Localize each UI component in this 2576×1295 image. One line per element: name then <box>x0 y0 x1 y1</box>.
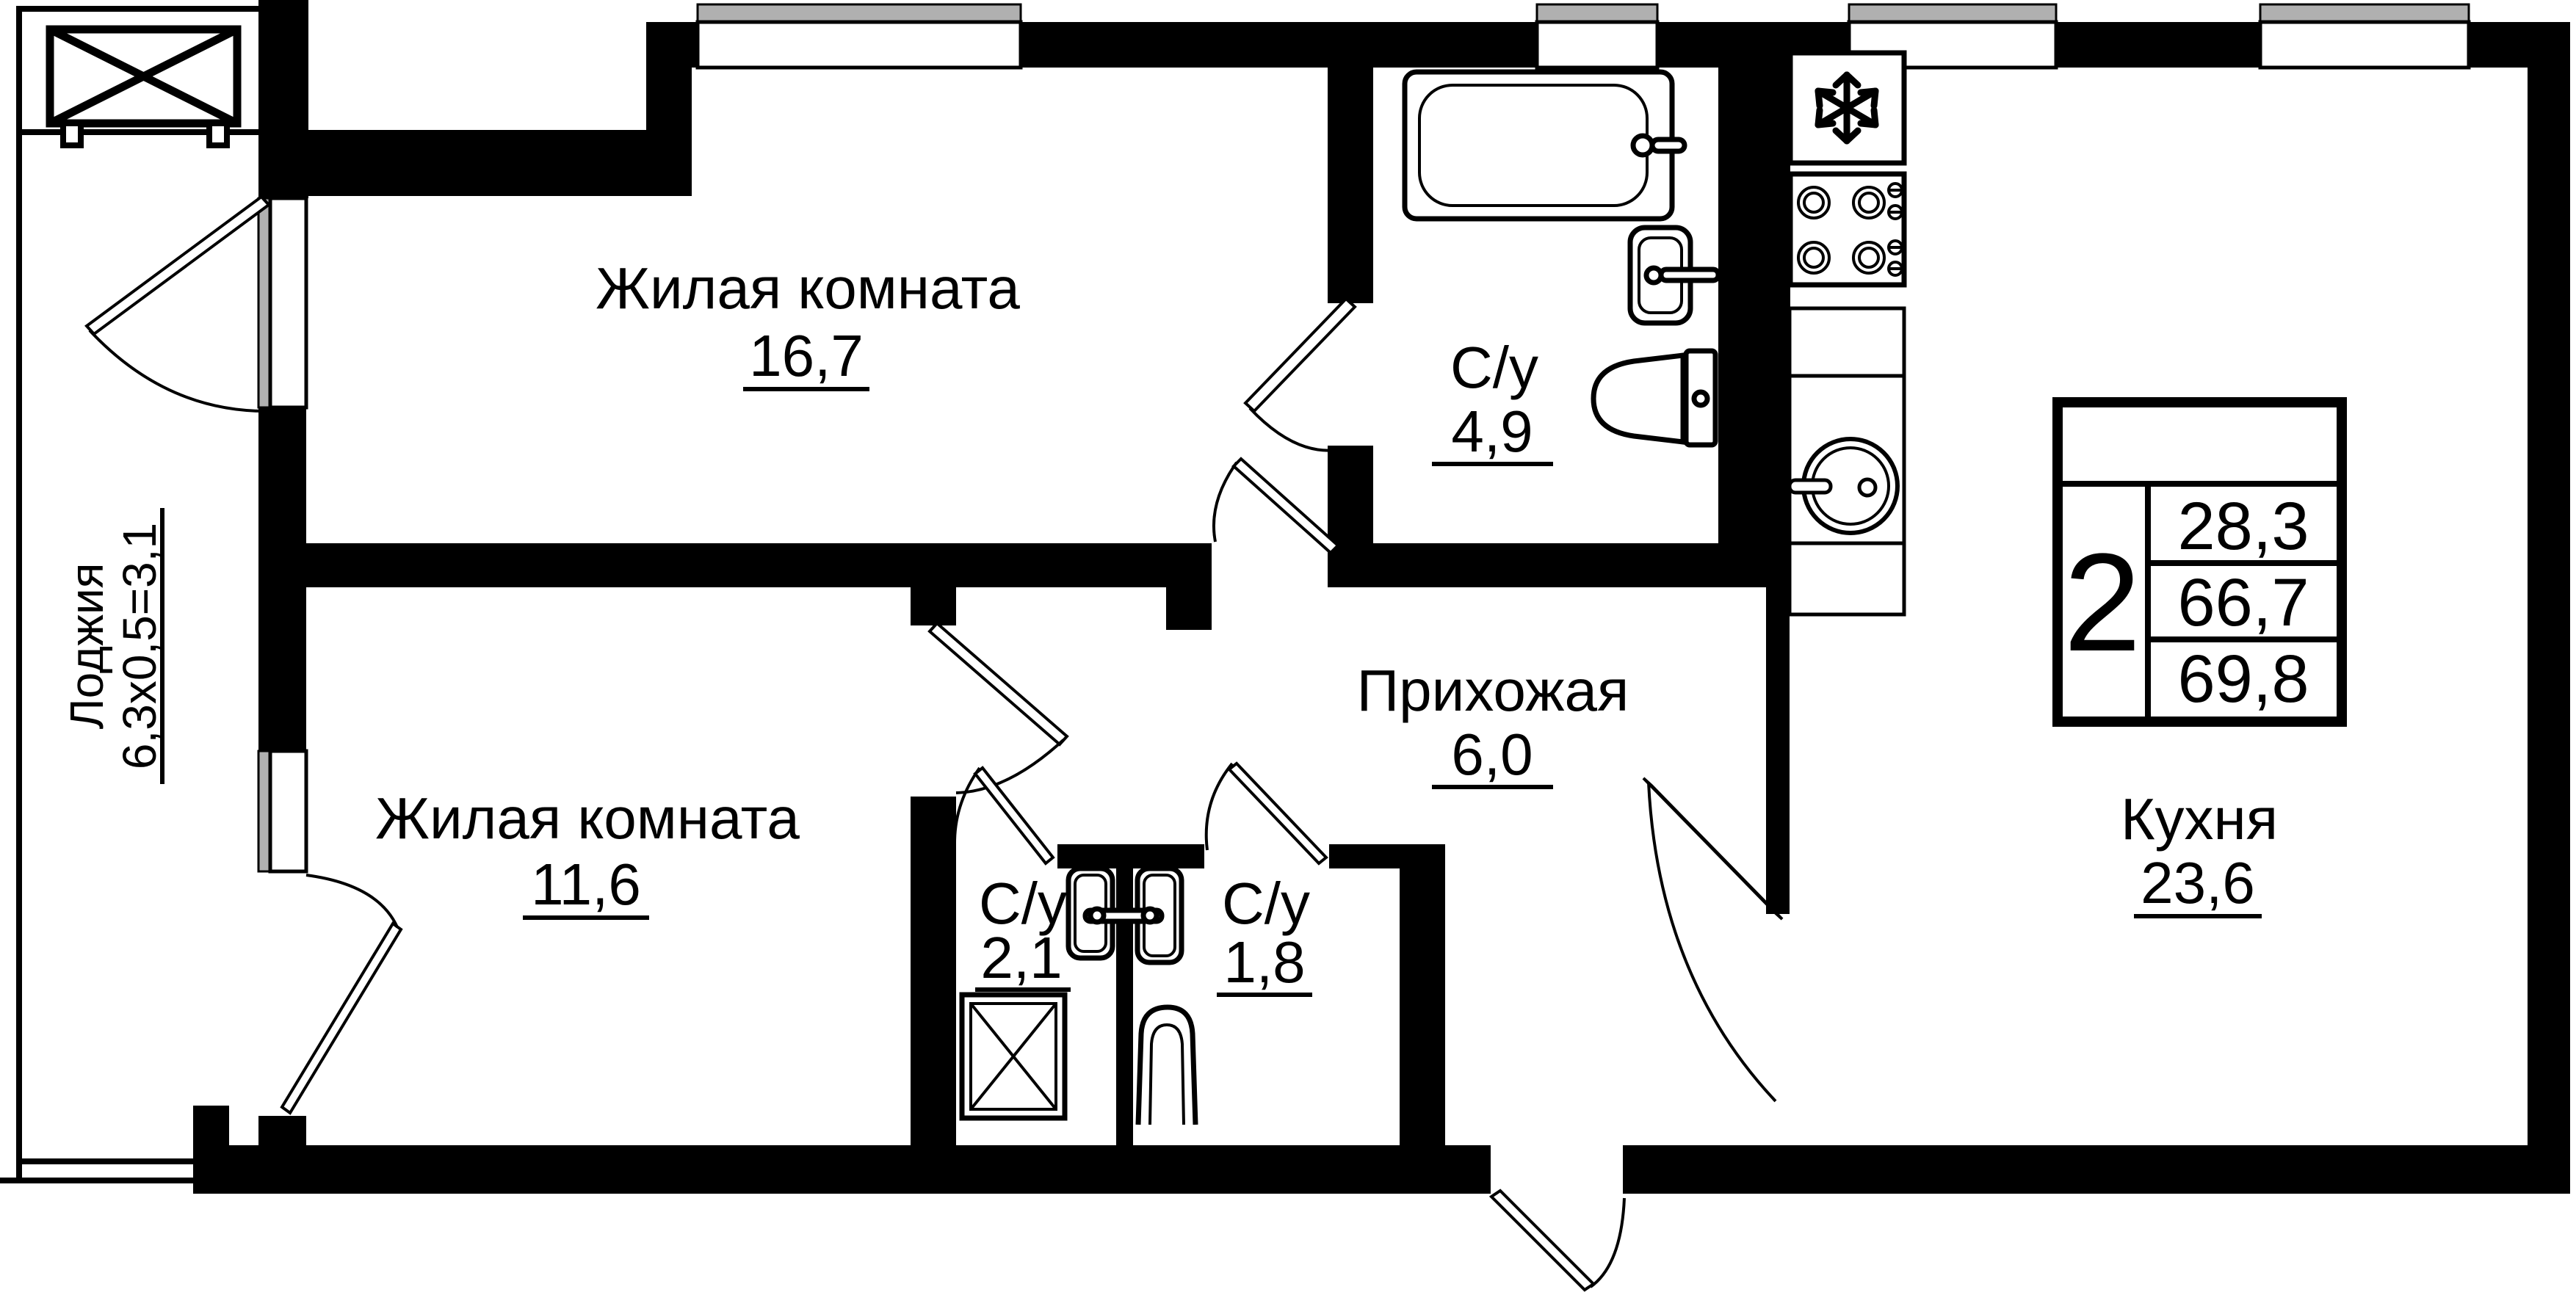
bath1-wall-bottom <box>1328 543 1790 587</box>
room-dimensions: 6,3х0,5=3,1 <box>113 523 166 769</box>
room-name: Прихожая <box>1357 658 1629 723</box>
outer-wall-right <box>2528 22 2570 1194</box>
living2-right-wall-stub <box>911 587 956 625</box>
door-entrance <box>1491 1191 1624 1290</box>
sink-icon <box>1630 228 1718 323</box>
door-kitchen <box>1643 778 1782 1101</box>
room-name: С/у <box>1450 335 1538 400</box>
room-name: С/у <box>1222 871 1310 936</box>
living1-label: Жилая комната 16,7 <box>596 255 1020 389</box>
left-wall-low-pier <box>258 1116 306 1145</box>
sash-swing-arc <box>90 330 266 411</box>
room-area: 6,0 <box>1451 722 1533 787</box>
outer-wall-bottom-left <box>229 1145 1491 1194</box>
corner-pier-top-left <box>258 0 308 198</box>
room-area: 16,7 <box>749 323 864 388</box>
corner-pier-bottom-left <box>193 1106 229 1194</box>
legend-rooms-count: 2 <box>2063 525 2141 681</box>
loggia: Лоджия 6,3х0,5=3,1 <box>0 6 258 1180</box>
kitchen-counter <box>1790 308 1904 614</box>
legend-living-area: 28,3 <box>2177 489 2309 564</box>
kitchen-fixtures <box>1790 53 1904 614</box>
living2-right-wall <box>911 797 956 1145</box>
wall-between-rooms <box>258 543 1212 587</box>
room-name: Жилая комната <box>596 255 1020 321</box>
window-sash-open <box>87 197 269 334</box>
room-labels: Жилая комната 16,7 С/у 4,9 Прихожая 6,0 … <box>375 255 2278 995</box>
room-name: Жилая комната <box>375 786 800 851</box>
bath1-kitchen-wall <box>1718 68 1790 543</box>
room-area: 2,1 <box>980 925 1062 990</box>
shower-tray-icon <box>962 995 1065 1118</box>
door-bath3 <box>1206 763 1326 863</box>
stove-icon <box>1790 174 1904 285</box>
outer-wall-top-jog <box>305 130 692 196</box>
room-area: 11,6 <box>531 852 641 917</box>
hallway-label: Прихожая 6,0 <box>1357 658 1629 787</box>
outer-wall-bottom-right <box>1623 1145 2570 1194</box>
room-name: Кухня <box>2121 786 2278 852</box>
room-area: 4,9 <box>1451 399 1533 464</box>
legend-table: 2 28,3 66,7 69,8 <box>2058 402 2342 722</box>
loggia-label: Лоджия 6,3х0,5=3,1 <box>60 508 166 784</box>
door-bath1 <box>1245 299 1355 451</box>
bath2-label: С/у 2,1 <box>975 871 1071 990</box>
bath1-label: С/у 4,9 <box>1432 335 1553 464</box>
toilet2-icon <box>1138 1007 1195 1125</box>
outer-wall-jog-connector <box>646 68 692 134</box>
window-kitchen-right <box>2260 4 2469 68</box>
room-label: Лоджия <box>60 563 113 730</box>
bath1-wall-left-upper <box>1328 68 1373 303</box>
window-living1 <box>698 4 1021 68</box>
living2-label: Жилая комната 11,6 <box>375 786 800 918</box>
door-living1 <box>1214 459 1338 553</box>
bath3-top-wall-left <box>1133 844 1204 868</box>
toilet-icon <box>1593 351 1715 445</box>
room-area: 1,8 <box>1223 929 1305 995</box>
window-bath1 <box>1537 4 1657 68</box>
balcony-door-leaf <box>282 924 401 1113</box>
floor-plan-drawing: Лоджия 6,3х0,5=3,1 <box>0 0 2576 1295</box>
ac-unit-icon <box>50 29 237 145</box>
legend-usable-area: 66,7 <box>2177 565 2309 640</box>
kitchen-label: Кухня 23,6 <box>2121 786 2278 916</box>
window-living1-loggia <box>87 197 306 411</box>
legend-total-area: 69,8 <box>2177 642 2309 717</box>
room-area: 23,6 <box>2141 850 2255 915</box>
door-living2 <box>930 623 1067 793</box>
fridge-icon <box>1790 53 1904 163</box>
balcony-door-arc <box>306 875 397 927</box>
bath3-label: С/у 1,8 <box>1217 871 1312 995</box>
bathtub-icon <box>1405 72 1685 219</box>
floor-plan-page: Лоджия 6,3х0,5=3,1 <box>0 0 2576 1295</box>
bath1-wall-left-lower <box>1328 446 1373 543</box>
wall-pier-hall <box>1166 587 1212 630</box>
bath3-right-wall <box>1400 844 1445 1145</box>
hall-kitchen-wall <box>1766 587 1790 914</box>
bath2-bath3-divider <box>1116 844 1133 1145</box>
